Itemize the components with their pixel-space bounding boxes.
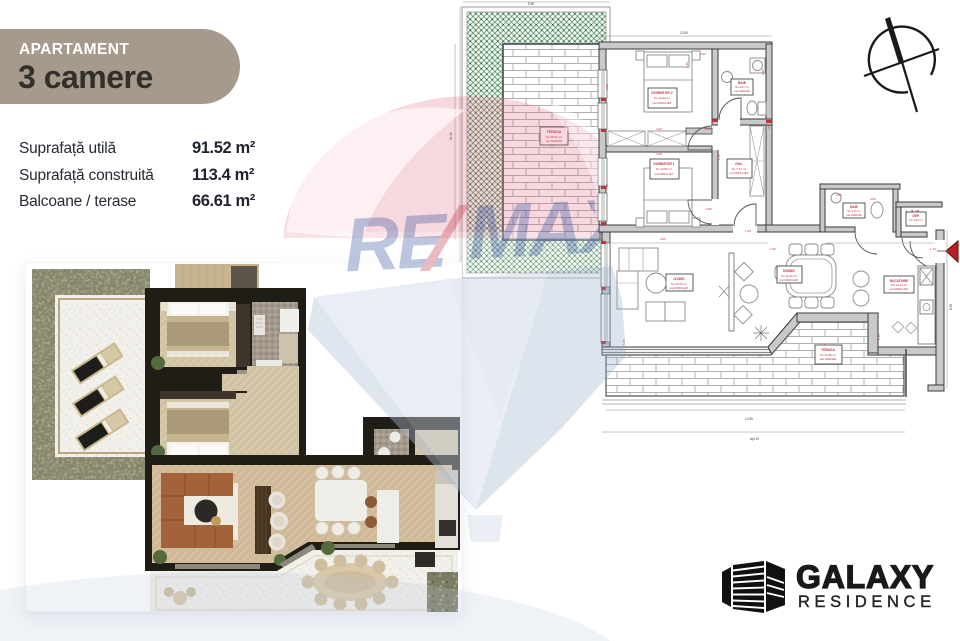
svg-text:MAX: MAX	[466, 182, 637, 276]
